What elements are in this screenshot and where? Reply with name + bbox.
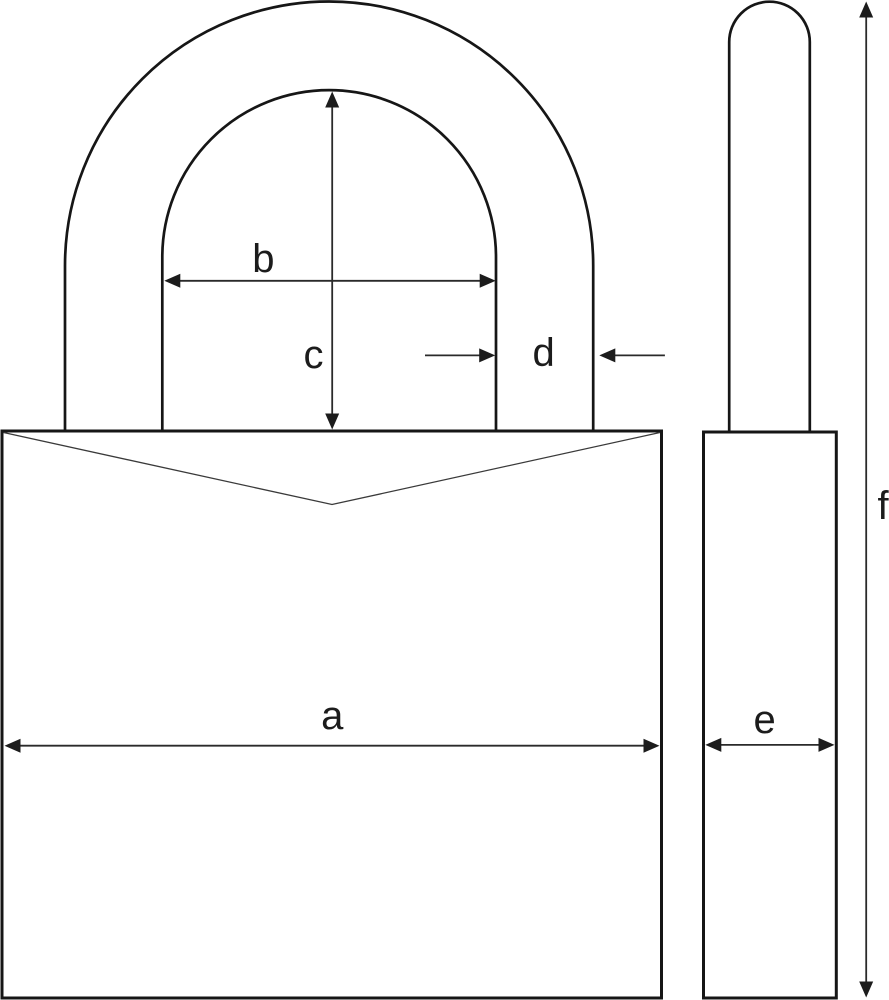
svg-text:c: c [304, 333, 324, 377]
svg-text:f: f [877, 484, 889, 528]
svg-text:e: e [753, 698, 775, 742]
svg-text:d: d [532, 331, 554, 375]
svg-text:a: a [321, 694, 344, 738]
svg-text:b: b [252, 237, 274, 281]
